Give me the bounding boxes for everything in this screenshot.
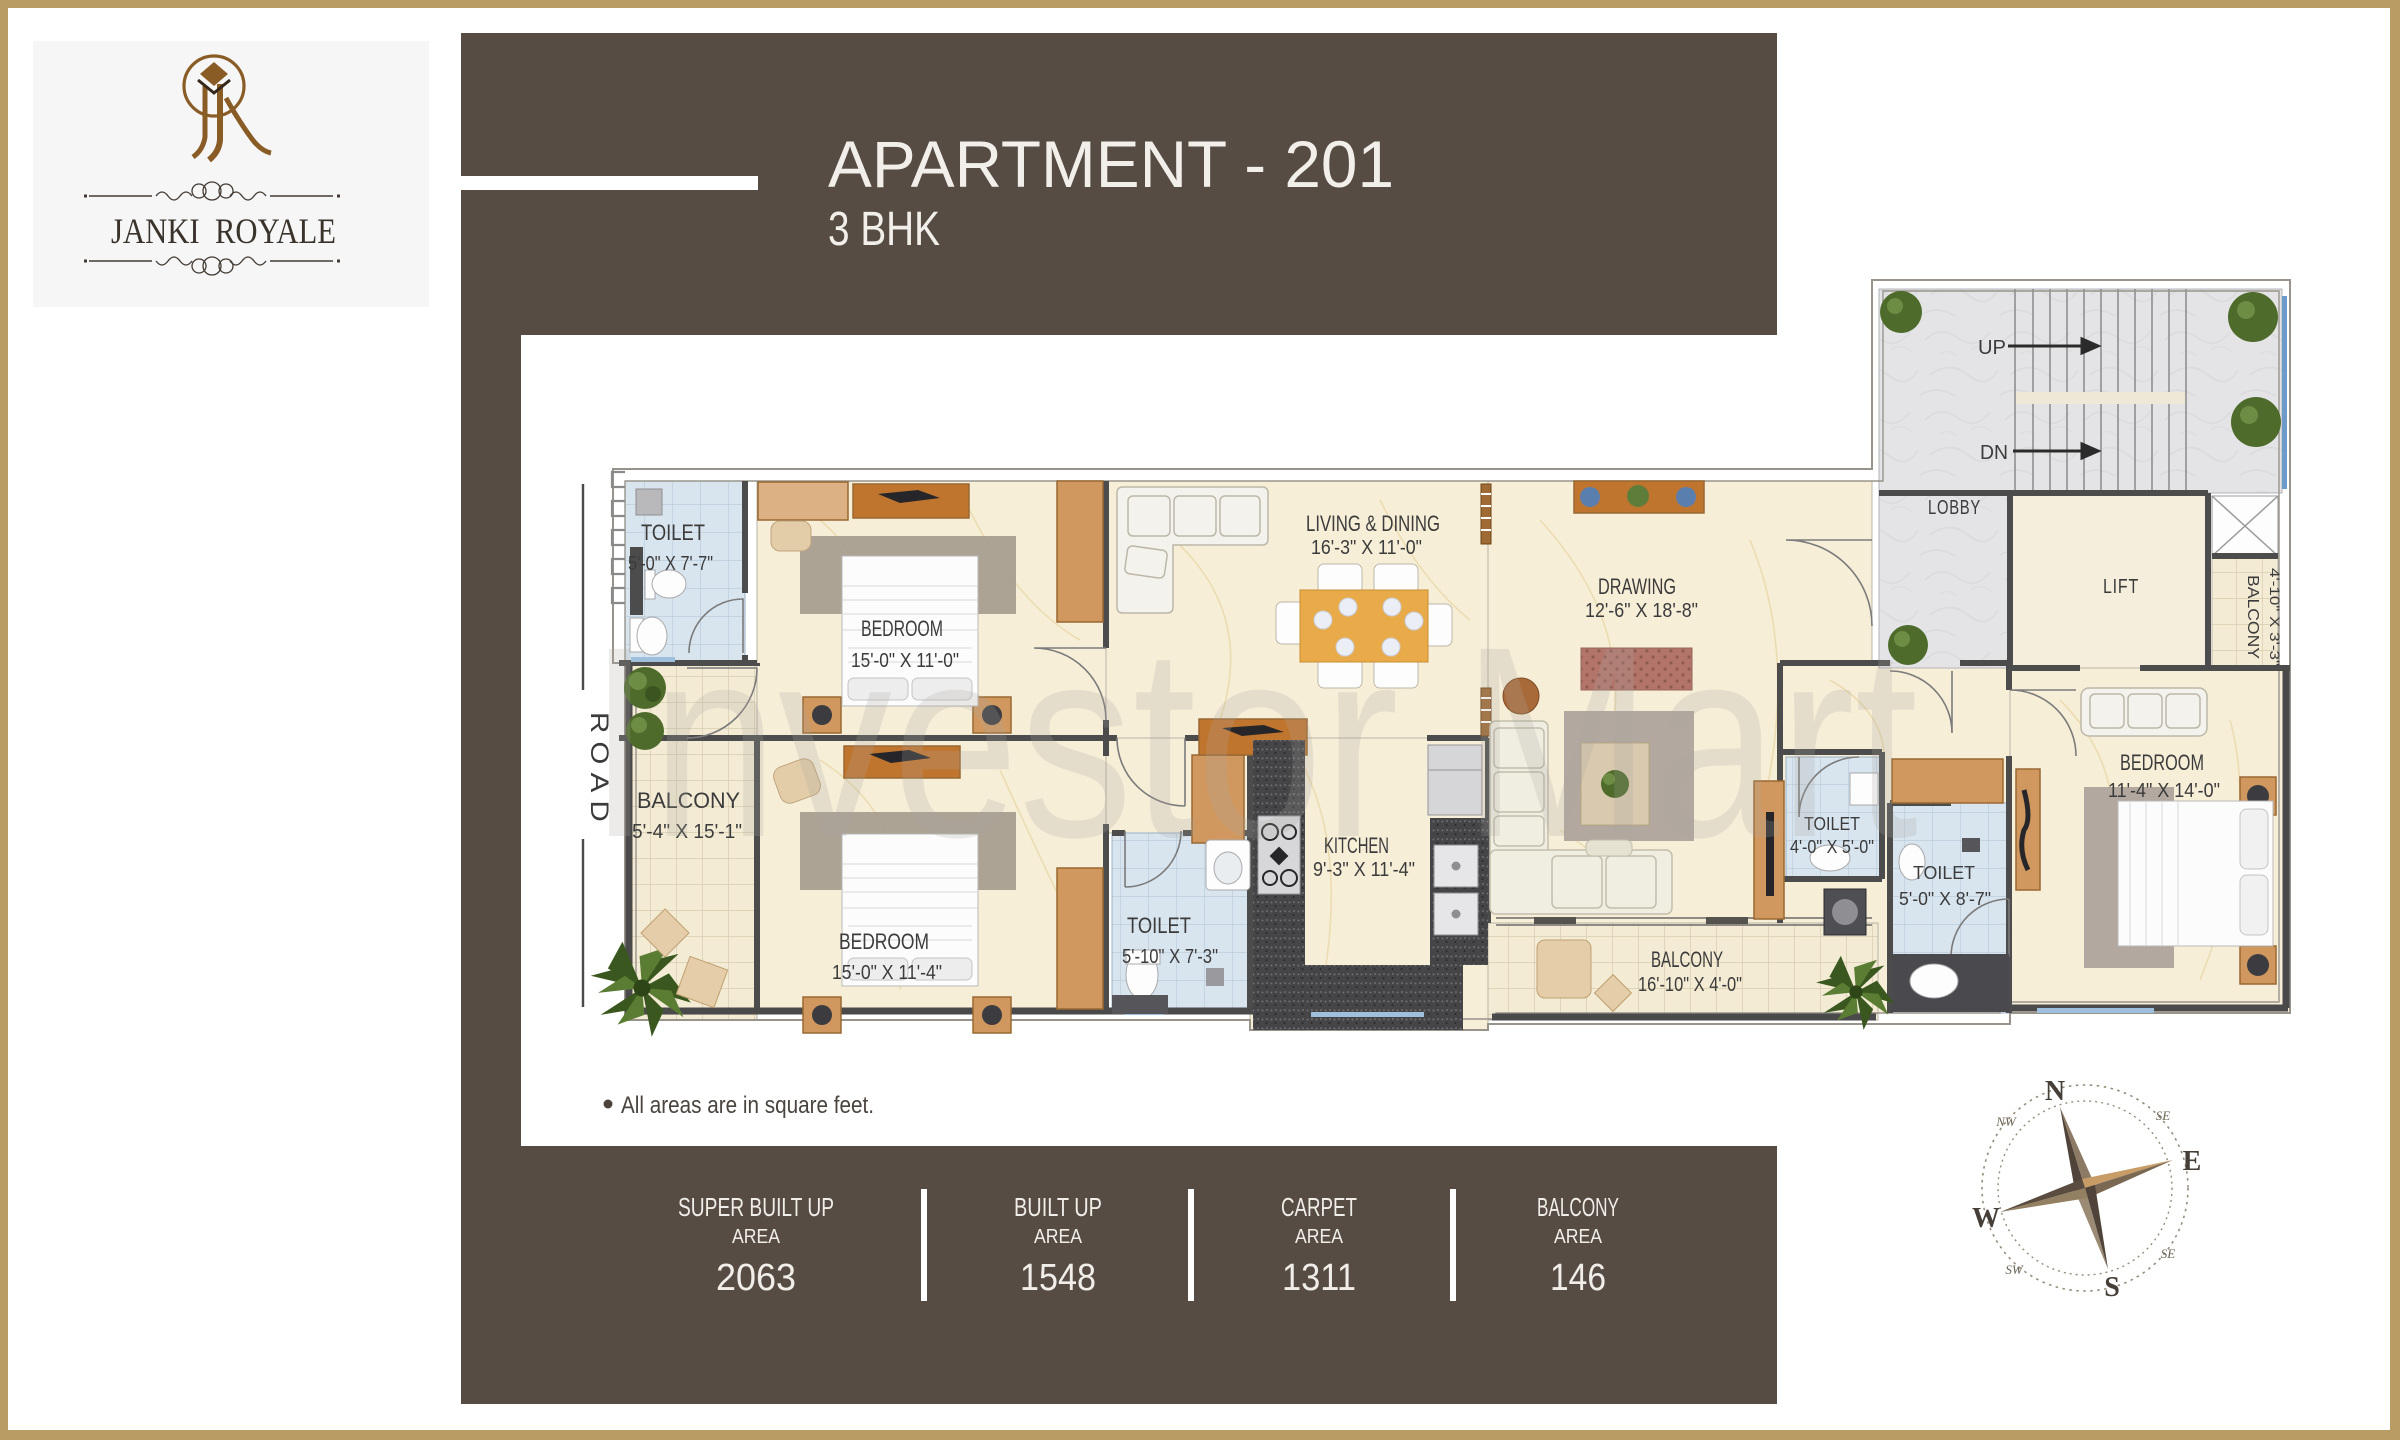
svg-text:APARTMENT - 201: APARTMENT - 201 bbox=[828, 127, 1394, 201]
svg-text:NW: NW bbox=[1995, 1114, 2017, 1129]
svg-text:S: S bbox=[2104, 1272, 2120, 1303]
svg-text:W: W bbox=[1972, 1203, 2000, 1234]
svg-text:3 BHK: 3 BHK bbox=[828, 203, 940, 256]
svg-text:5'-0" X 7'-7": 5'-0" X 7'-7" bbox=[628, 553, 713, 575]
svg-text:1311: 1311 bbox=[1282, 1257, 1356, 1299]
svg-text:UP: UP bbox=[1978, 337, 2006, 359]
svg-text:LIFT: LIFT bbox=[2103, 576, 2139, 598]
svg-text:AREA: AREA bbox=[1034, 1226, 1083, 1248]
svg-text:TOILET: TOILET bbox=[1127, 913, 1191, 938]
svg-text:LOBBY: LOBBY bbox=[1928, 497, 1981, 519]
svg-text:LIVING & DINING: LIVING & DINING bbox=[1306, 511, 1440, 536]
svg-text:BALCONY: BALCONY bbox=[1537, 1192, 1619, 1222]
svg-text:SE: SE bbox=[2156, 1108, 2171, 1123]
svg-text:BUILT UP: BUILT UP bbox=[1014, 1192, 1102, 1222]
svg-text:4'-10" X 3'-3": 4'-10" X 3'-3" bbox=[2267, 568, 2283, 666]
svg-text:5'-10" X 7'-3": 5'-10" X 7'-3" bbox=[1122, 946, 1218, 968]
svg-text:15'-0" X 11'-4": 15'-0" X 11'-4" bbox=[832, 962, 942, 984]
svg-text:SUPER BUILT UP: SUPER BUILT UP bbox=[678, 1192, 834, 1222]
svg-text:AREA: AREA bbox=[732, 1226, 781, 1248]
svg-text:DN: DN bbox=[1980, 442, 2008, 464]
svg-text:BALCONY: BALCONY bbox=[2244, 575, 2261, 659]
svg-text:BALCONY: BALCONY bbox=[1651, 947, 1723, 972]
svg-text:AREA: AREA bbox=[1554, 1226, 1603, 1248]
svg-text:SW: SW bbox=[2005, 1262, 2024, 1277]
svg-text:All areas are in square feet.: All areas are in square feet. bbox=[621, 1092, 874, 1119]
svg-text:16'-10" X 4'-0": 16'-10" X 4'-0" bbox=[1638, 974, 1742, 996]
svg-text:JANKI ROYALE: JANKI ROYALE bbox=[111, 211, 336, 251]
svg-text:AREA: AREA bbox=[1295, 1226, 1344, 1248]
svg-text:CARPET: CARPET bbox=[1281, 1192, 1357, 1222]
svg-text:2063: 2063 bbox=[716, 1257, 796, 1299]
svg-text:11'-4" X 14'-0": 11'-4" X 14'-0" bbox=[2108, 780, 2220, 802]
svg-text:1548: 1548 bbox=[1020, 1257, 1096, 1299]
svg-text:16'-3" X 11'-0": 16'-3" X 11'-0" bbox=[1311, 537, 1422, 559]
svg-text:N: N bbox=[2045, 1076, 2065, 1107]
svg-text:BEDROOM: BEDROOM bbox=[839, 929, 929, 954]
svg-text:SE: SE bbox=[2161, 1246, 2176, 1261]
svg-text:E: E bbox=[2183, 1146, 2202, 1177]
svg-text:TOILET: TOILET bbox=[1913, 863, 1975, 883]
svg-text:TOILET: TOILET bbox=[641, 520, 705, 545]
svg-text:Investor Mart: Investor Mart bbox=[588, 590, 1919, 894]
svg-text:BEDROOM: BEDROOM bbox=[2120, 750, 2204, 775]
svg-text:146: 146 bbox=[1550, 1257, 1606, 1299]
